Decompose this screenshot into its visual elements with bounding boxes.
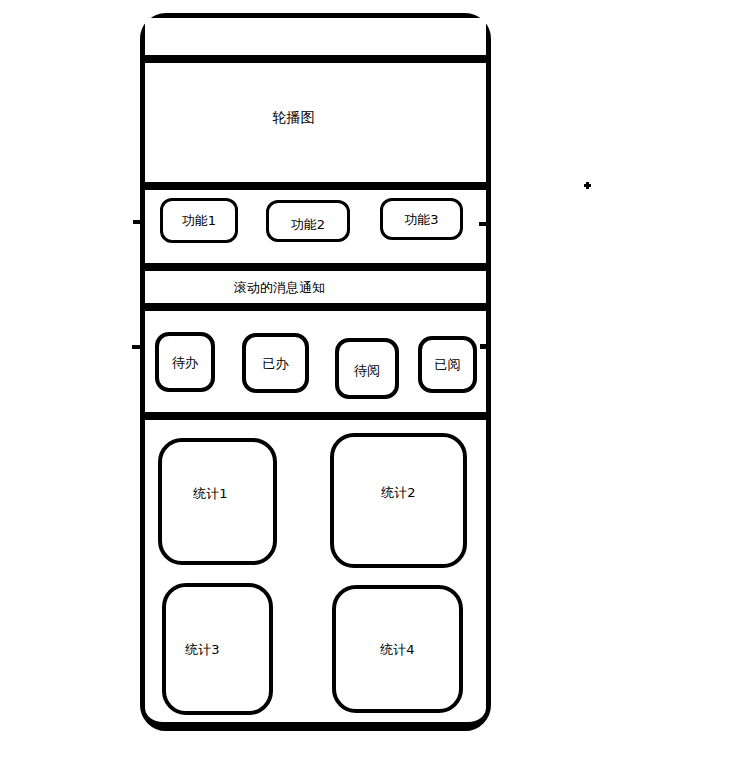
todo-tab-read[interactable]: 已阅 (418, 336, 477, 393)
stat-card-2-label: 统计2 (381, 486, 415, 499)
stat-card-3-label: 统计3 (185, 643, 219, 656)
notice-label: 滚动的消息通知 (234, 281, 325, 294)
edge-tick-right-1 (479, 222, 487, 226)
phone-frame: 轮播图 功能1 功能2 功能3 滚动的消息通知 待办 已办 待阅 (140, 13, 491, 731)
stray-plus-mark (584, 182, 591, 189)
function-button-row: 功能1 功能2 功能3 (145, 186, 486, 267)
stat-card-3[interactable]: 统计3 (162, 583, 273, 715)
edge-tick-left-2 (132, 345, 141, 349)
carousel-placeholder[interactable]: 轮播图 (145, 59, 486, 186)
todo-tab-pending-label: 待办 (172, 356, 198, 369)
todo-tab-pending[interactable]: 待办 (155, 332, 215, 392)
stat-card-1[interactable]: 统计1 (158, 438, 277, 565)
function-button-2-label: 功能2 (291, 218, 325, 231)
todo-tab-done[interactable]: 已办 (242, 333, 309, 393)
function-button-1-label: 功能1 (182, 214, 216, 227)
status-bar (145, 18, 486, 59)
function-button-3[interactable]: 功能3 (380, 198, 463, 240)
edge-tick-right-2 (480, 344, 487, 349)
wireframe-canvas: 轮播图 功能1 功能2 功能3 滚动的消息通知 待办 已办 待阅 (0, 0, 739, 768)
todo-tab-done-label: 已办 (263, 357, 289, 370)
todo-tab-row: 待办 已办 待阅 已阅 (145, 307, 486, 416)
stat-card-4-label: 统计4 (380, 643, 414, 656)
todo-tab-read-label: 已阅 (435, 358, 461, 371)
stat-card-4[interactable]: 统计4 (332, 585, 463, 713)
function-button-3-label: 功能3 (404, 213, 438, 226)
stats-panel: 统计1 统计2 统计3 统计4 (145, 416, 486, 726)
todo-tab-to-read-label: 待阅 (354, 364, 380, 377)
function-button-1[interactable]: 功能1 (160, 198, 238, 243)
function-button-2[interactable]: 功能2 (266, 200, 350, 242)
notice-banner[interactable]: 滚动的消息通知 (145, 267, 486, 307)
edge-tick-left-1 (133, 220, 142, 224)
todo-tab-to-read[interactable]: 待阅 (335, 338, 399, 399)
stat-card-2[interactable]: 统计2 (330, 433, 467, 568)
carousel-label: 轮播图 (273, 110, 315, 124)
stat-card-1-label: 统计1 (193, 487, 227, 500)
